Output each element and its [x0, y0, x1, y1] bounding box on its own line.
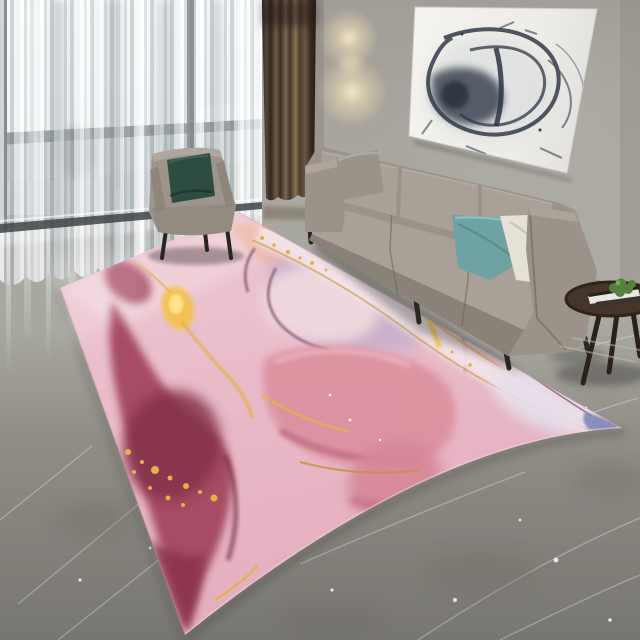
curtain-floor-reflection [262, 206, 312, 220]
living-room-photo [0, 0, 640, 640]
